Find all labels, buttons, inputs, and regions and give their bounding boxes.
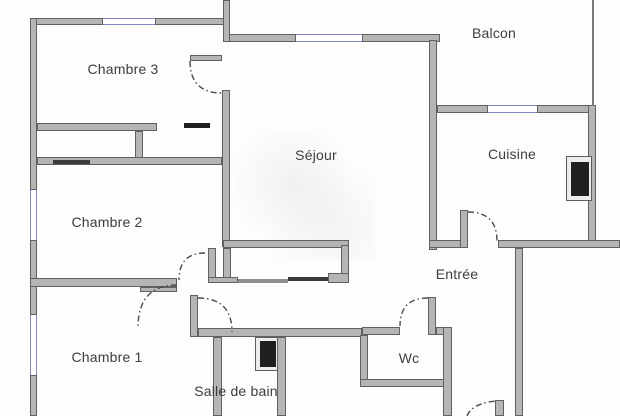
room-label-salle-de-bain: Salle de bain bbox=[194, 383, 278, 399]
wall bbox=[443, 327, 452, 416]
window bbox=[488, 105, 537, 113]
closet-sliding-door bbox=[184, 123, 210, 128]
wall bbox=[140, 287, 177, 292]
bathroom-door bbox=[260, 341, 276, 367]
wall bbox=[208, 277, 238, 283]
window bbox=[296, 34, 362, 42]
window bbox=[103, 18, 155, 25]
wall bbox=[277, 337, 286, 416]
kitchen-appliance bbox=[571, 162, 589, 196]
wall bbox=[362, 327, 400, 335]
wall bbox=[437, 105, 488, 113]
wall bbox=[155, 18, 229, 25]
wall bbox=[429, 40, 437, 250]
window bbox=[30, 315, 37, 375]
wall bbox=[213, 337, 222, 416]
door-arc-bottom bbox=[467, 401, 497, 416]
wall bbox=[198, 328, 362, 337]
door-arc-chambre3 bbox=[190, 61, 222, 93]
room-label-cuisine: Cuisine bbox=[488, 146, 536, 162]
room-label-balcon: Balcon bbox=[472, 25, 516, 41]
wall bbox=[30, 18, 103, 25]
balcony-railing bbox=[592, 0, 594, 106]
room-label-chambre3: Chambre 3 bbox=[87, 61, 158, 77]
wall bbox=[498, 240, 620, 248]
wall bbox=[37, 123, 157, 131]
room-label-sejour: Séjour bbox=[295, 147, 337, 163]
wall bbox=[495, 400, 504, 416]
wall bbox=[515, 248, 523, 416]
door-arc-cuisine bbox=[468, 212, 497, 241]
wall bbox=[190, 295, 198, 337]
door-arc-chambre2 bbox=[179, 253, 205, 280]
door-arc-wc bbox=[400, 298, 428, 326]
floorplan: Chambre 3 Balcon Séjour Cuisine Chambre … bbox=[0, 0, 620, 416]
window bbox=[30, 190, 37, 240]
kitchen-door-leaf bbox=[460, 210, 468, 248]
wc-door-leaf bbox=[428, 297, 436, 335]
wall bbox=[238, 279, 288, 283]
wall bbox=[30, 375, 37, 416]
wall bbox=[30, 278, 177, 287]
hall-closet-sliding-door bbox=[288, 277, 328, 281]
closet-sliding-door bbox=[53, 160, 90, 164]
wall bbox=[229, 34, 296, 42]
room-label-entree: Entrée bbox=[436, 266, 478, 282]
wall bbox=[328, 273, 349, 283]
bedroom3-door-leaf bbox=[190, 55, 222, 61]
room-label-chambre1: Chambre 1 bbox=[71, 349, 142, 365]
room-label-wc: Wc bbox=[399, 350, 420, 366]
wall bbox=[222, 90, 230, 247]
door-arc-corridor bbox=[198, 298, 232, 332]
wall bbox=[30, 18, 37, 190]
wall bbox=[360, 379, 452, 387]
wall bbox=[223, 240, 349, 248]
room-label-chambre2: Chambre 2 bbox=[71, 214, 142, 230]
